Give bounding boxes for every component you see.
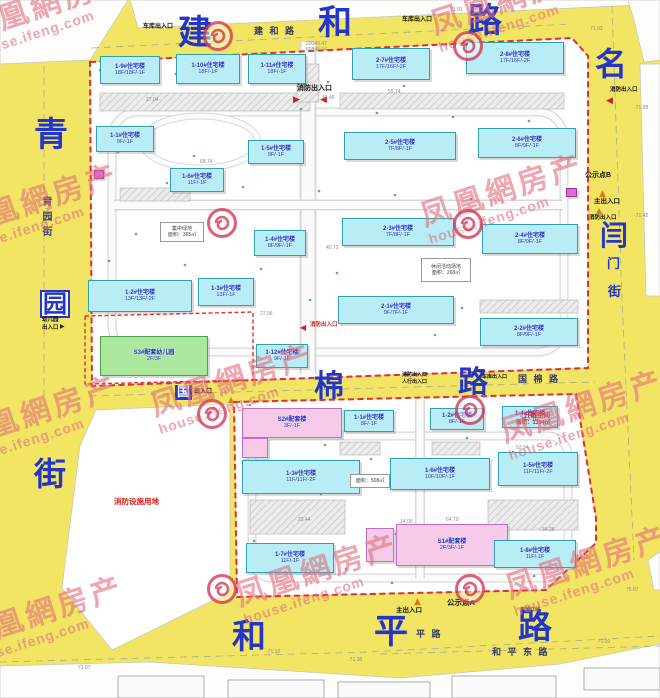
area-note-box: 休闲活动场地面积：268㎡	[421, 258, 471, 282]
road-name-label: 平	[374, 615, 408, 649]
building-footprint: 1-10#住宅楼18F/-1F	[176, 54, 240, 84]
building-floors: 13F/-1F	[216, 292, 235, 298]
building-floors: 7F/8F/-1F	[386, 232, 410, 238]
entrance-label: 主出入口	[594, 198, 620, 205]
building-footprint: 1-5#住宅楼9F/-1F	[248, 140, 304, 164]
building-floors: 3F/-1F	[284, 423, 300, 429]
building-footprint: 2-3#住宅楼7F/8F/-1F	[342, 218, 454, 246]
dimension-number: 64.79	[446, 518, 459, 523]
road-name-label: 建	[178, 16, 212, 50]
building-footprint: 1-5#住宅楼11F/11F/-2F	[498, 452, 578, 486]
utility-box	[94, 170, 104, 179]
building-floors: 8F/9F/-1F	[518, 239, 542, 245]
building-footprint: 1-2#住宅楼13F/13F/-2F	[88, 280, 192, 312]
building-footprint: 1-6#住宅楼11F/-1F	[170, 168, 224, 192]
map-annotation-layer: 1-9#住宅楼18F/18F/-1F1-10#住宅楼18F/-1F1-11#住宅…	[0, 0, 660, 698]
building-floors: 11F/-1F	[188, 180, 207, 186]
building-footprint: 1-9#住宅楼18F/18F/-1F	[100, 56, 160, 84]
road-name-label: 路	[518, 610, 552, 644]
dimension-number: ·71.12	[266, 650, 280, 655]
building-floors: 9F/-1F	[274, 356, 290, 362]
building-floors: 17F/16F/-2F	[500, 58, 530, 64]
dimension-number: 27.04	[146, 98, 159, 103]
building-footprint: 1-4#住宅楼8F/9F/-1F	[254, 230, 306, 256]
building-floors: 10F/10F/-1F	[425, 474, 455, 480]
road-name-small-label: 建 和 路	[254, 24, 296, 37]
road-name-small-label: 国 棉 路	[518, 372, 560, 385]
entrance-triangle-icon: ▲	[596, 207, 602, 215]
building-floors: 11F/11F/-2F	[523, 469, 552, 475]
road-name-label: 门	[607, 258, 620, 271]
building-floors: 9F/-1F	[117, 139, 133, 145]
entrance-label: 消防设施用地	[114, 498, 159, 506]
street-name-vertical: 青园街	[38, 196, 53, 241]
area-note-text: 面积：508㎡	[356, 478, 384, 484]
area-note-box: 面积：508㎡	[350, 474, 390, 488]
entrance-label: 开敞空间	[524, 412, 550, 419]
dimension-number: ·71.38	[348, 658, 362, 663]
building-floors: 9F/7F/-1F	[384, 310, 408, 316]
building-floors: 13F/13F/-2F	[125, 296, 155, 302]
building-footprint: 1-12#住宅楼9F/-1F	[256, 344, 308, 368]
building-floors: 7F/8F/-1F	[388, 146, 412, 152]
dimension-number: 55.74	[388, 90, 401, 95]
road-name-label: 和	[232, 620, 266, 654]
building-footprint: 2-6#住宅楼8F/9F/-1F	[478, 128, 576, 158]
entrance-label: 出入口	[42, 325, 59, 331]
building-floors: 2F/3F	[147, 356, 161, 362]
building-floors: 18F/-1F	[267, 69, 286, 75]
building-footprint: 2-8#住宅楼17F/16F/-2F	[466, 42, 564, 74]
entrance-label: 幼儿园	[42, 317, 59, 323]
service-building	[242, 438, 268, 458]
entrance-label: 消防出入口	[589, 215, 617, 221]
building-floors: 11F/-1F	[526, 554, 545, 560]
building-floors: 17F/16F/-2F	[376, 64, 406, 70]
area-note-text: 面积：365㎡	[168, 232, 196, 238]
road-name-label: 街	[34, 458, 66, 490]
road-name-label: 街	[608, 286, 621, 299]
building-footprint: 2-1#住宅楼9F/7F/-1F	[338, 296, 454, 324]
building-floors: 8F/-1F	[449, 419, 465, 425]
entrance-triangle-icon: ▲	[414, 598, 421, 607]
entrance-label: 消防出入口	[402, 373, 427, 379]
area-note-box: 集中绿地面积：365㎡	[160, 222, 204, 242]
road-name-label: 路	[468, 4, 502, 38]
entrance-label: 消防出入口	[310, 322, 338, 328]
fire-access-arrow-icon: ▶	[60, 324, 65, 330]
service-building: S1#配套楼2F/3F/-1F	[396, 524, 508, 566]
entrance-label: 主出入口	[396, 607, 422, 614]
building-footprint: 2-4#住宅楼8F/9F/-1F	[482, 224, 578, 254]
road-name-small-label: 和 平 东 路	[492, 645, 550, 658]
building-footprint: 1-2#住宅楼8F/-1F	[430, 408, 484, 430]
dimension-number: 52.94	[516, 446, 529, 451]
service-building	[366, 528, 394, 562]
dimension-number: 40.73	[326, 246, 339, 251]
entrance-label: 用地红线	[520, 608, 540, 614]
area-note-text: 面积：268㎡	[432, 270, 460, 276]
entrance-label: 出入口	[194, 389, 212, 396]
road-name-label: 名	[595, 48, 627, 80]
road-name-label: 国	[175, 385, 192, 400]
dimension-number: 14.09	[400, 520, 413, 525]
service-building: S2#配套楼3F/-1F	[242, 408, 342, 438]
building-footprint: 2-5#住宅楼7F/8F/-1F	[344, 132, 456, 160]
entrance-triangle-icon: ▲	[599, 190, 606, 199]
building-floors: 8F/9F/-1F	[515, 143, 539, 149]
building-floors: 18F/18F/-1F	[115, 70, 145, 76]
building-floors: 18F/-1F	[198, 69, 217, 75]
dimension-number: 17.12	[576, 556, 589, 561]
dimension-number: 71.03	[590, 27, 603, 32]
dimension-number: ·71.42	[634, 214, 648, 219]
entrance-label: 公示点B	[585, 172, 611, 180]
building-floors: 8F/-1F	[361, 421, 377, 427]
dimension-number: 75.87	[626, 588, 639, 593]
building-footprint: 2-7#住宅楼17F/16F/-2F	[352, 48, 430, 80]
road-name-label: 青	[34, 118, 68, 152]
site-plan-map: 1-9#住宅楼18F/18F/-1F1-10#住宅楼18F/-1F1-11#住宅…	[0, 0, 660, 698]
building-floors: 11F/11F/-2F	[286, 477, 315, 483]
building-footprint: 1-1#住宅楼9F/-1F	[96, 126, 154, 152]
road-name-label: 闫	[600, 222, 628, 250]
entrance-label: 公示点A	[447, 599, 475, 607]
dimension-number: 71.07	[78, 666, 91, 671]
entrance-label: 车库出入口	[482, 375, 507, 381]
dimension-number: ·71.09	[596, 640, 610, 645]
building-footprint: 1-3#住宅楼11F/11F/-2F	[242, 460, 360, 494]
entrance-triangle-icon: ▲	[228, 396, 234, 404]
road-name-label: 和	[318, 6, 352, 40]
building-footprint: 1-6#住宅楼10F/10F/-1F	[390, 458, 490, 490]
entrance-label: 人行出入口	[402, 380, 427, 386]
building-footprint: 1-11#住宅楼18F/-1F	[248, 54, 306, 84]
fire-access-arrow-icon: ◀	[300, 324, 306, 332]
utility-box	[566, 188, 577, 197]
building-footprint: 1-3#住宅楼13F/-1F	[198, 278, 254, 306]
road-name-small-label: 平 路	[416, 627, 443, 640]
building-footprint: 1-1#住宅楼8F/-1F	[344, 410, 394, 432]
entrance-label: 消防出入口	[610, 87, 638, 93]
building-floors: 2F/3F/-1F	[440, 545, 464, 551]
dimension-number: 23.44	[298, 518, 311, 523]
dimension-number: 34.28	[542, 528, 555, 533]
dimension-number: 13.46	[322, 96, 335, 101]
building-footprint: 1-7#住宅楼11F/-1F	[246, 543, 334, 573]
building-floors: 8F/9F/-1F	[268, 243, 292, 249]
building-footprint: 2-2#住宅楼8F/9F/-1F	[480, 318, 578, 346]
entrance-label: 面积：1304㎡	[516, 420, 550, 426]
road-name-label: 棉	[314, 372, 344, 402]
dimension-number: 71.91	[450, 8, 463, 13]
entrance-label: 车库出入口	[143, 24, 173, 31]
road-name-label: 园	[40, 290, 70, 318]
kindergarten-building: S3#配套幼儿园2F/3F	[100, 336, 208, 376]
building-floors: 11F/-1F	[281, 558, 300, 564]
building-floors: 8F/9F/-1F	[517, 332, 541, 338]
building-floors: 9F/-1F	[268, 152, 284, 158]
dimension-number: 27.96	[260, 312, 273, 317]
fire-access-arrow-icon: ◀	[606, 97, 613, 106]
dimension-number: 60845.44	[306, 48, 327, 53]
dimension-number: 68.74	[200, 160, 213, 165]
entrance-label: 车库出入口	[402, 17, 432, 24]
dimension-number: ·71.08	[634, 106, 648, 111]
entrance-label: 消防出入口	[297, 85, 332, 93]
fire-access-arrow-icon: ▶	[293, 96, 300, 105]
road-name-label: 路	[458, 368, 488, 398]
building-footprint: 1-8#住宅楼11F/-1F	[494, 540, 576, 568]
